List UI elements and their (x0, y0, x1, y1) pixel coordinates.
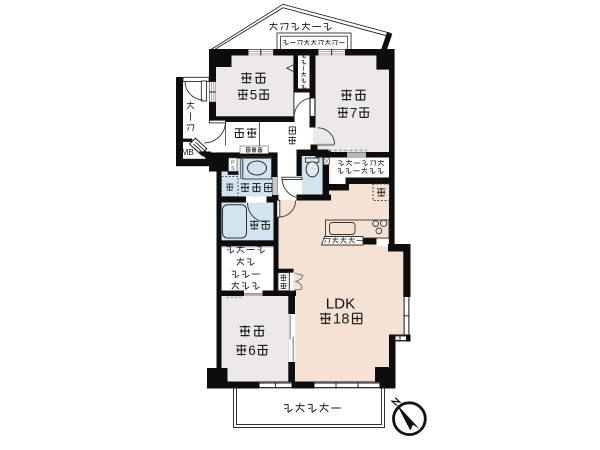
svg-text:5: 5 (250, 87, 258, 102)
svg-text:LDK: LDK (326, 296, 356, 313)
svg-text:MB: MB (182, 148, 195, 157)
svg-text:8: 8 (341, 312, 349, 328)
svg-text:7: 7 (350, 105, 358, 120)
svg-text:1: 1 (333, 312, 341, 328)
svg-text:S: S (231, 166, 235, 172)
svg-text:6: 6 (248, 343, 256, 358)
